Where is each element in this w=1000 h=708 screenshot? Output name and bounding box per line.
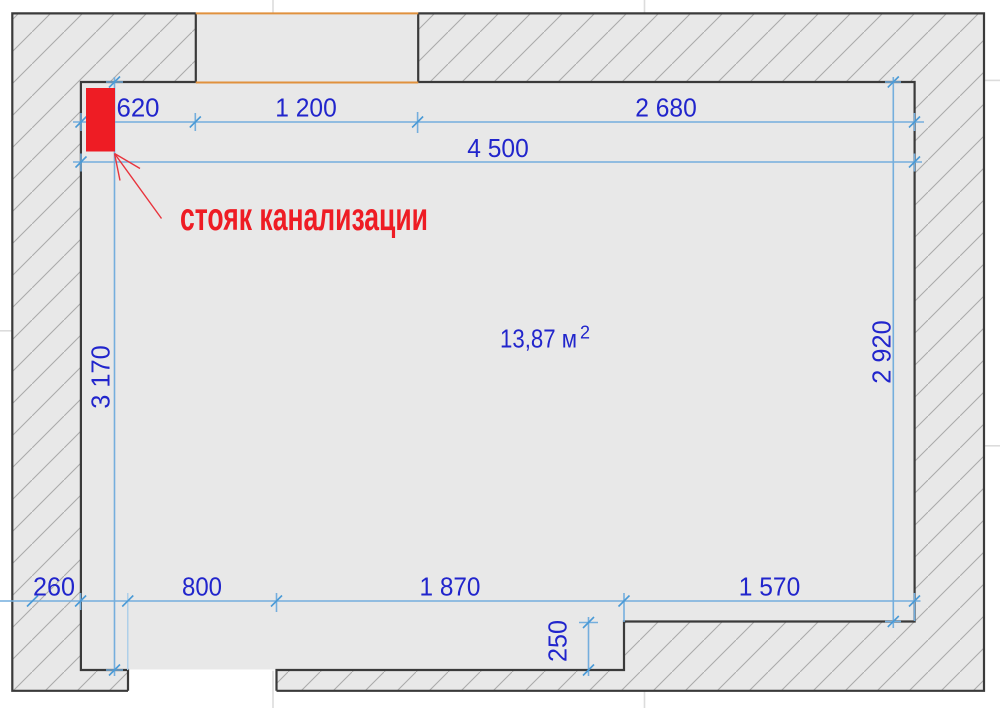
svg-text:800: 800 — [182, 572, 222, 602]
svg-text:1 570: 1 570 — [739, 572, 801, 602]
svg-text:620: 620 — [117, 93, 160, 123]
svg-text:250: 250 — [543, 620, 573, 662]
svg-text:260: 260 — [33, 572, 75, 602]
svg-text:3 170: 3 170 — [86, 345, 116, 409]
svg-text:2 680: 2 680 — [635, 93, 697, 123]
svg-text:4 500: 4 500 — [467, 133, 529, 163]
svg-text:2: 2 — [580, 323, 590, 343]
svg-text:2 920: 2 920 — [867, 320, 897, 384]
svg-text:1 870: 1 870 — [420, 572, 481, 602]
svg-text:1 200: 1 200 — [275, 93, 337, 123]
svg-text:13,87 м: 13,87 м — [500, 324, 577, 354]
svg-text:стояк канализации: стояк канализации — [180, 196, 428, 239]
